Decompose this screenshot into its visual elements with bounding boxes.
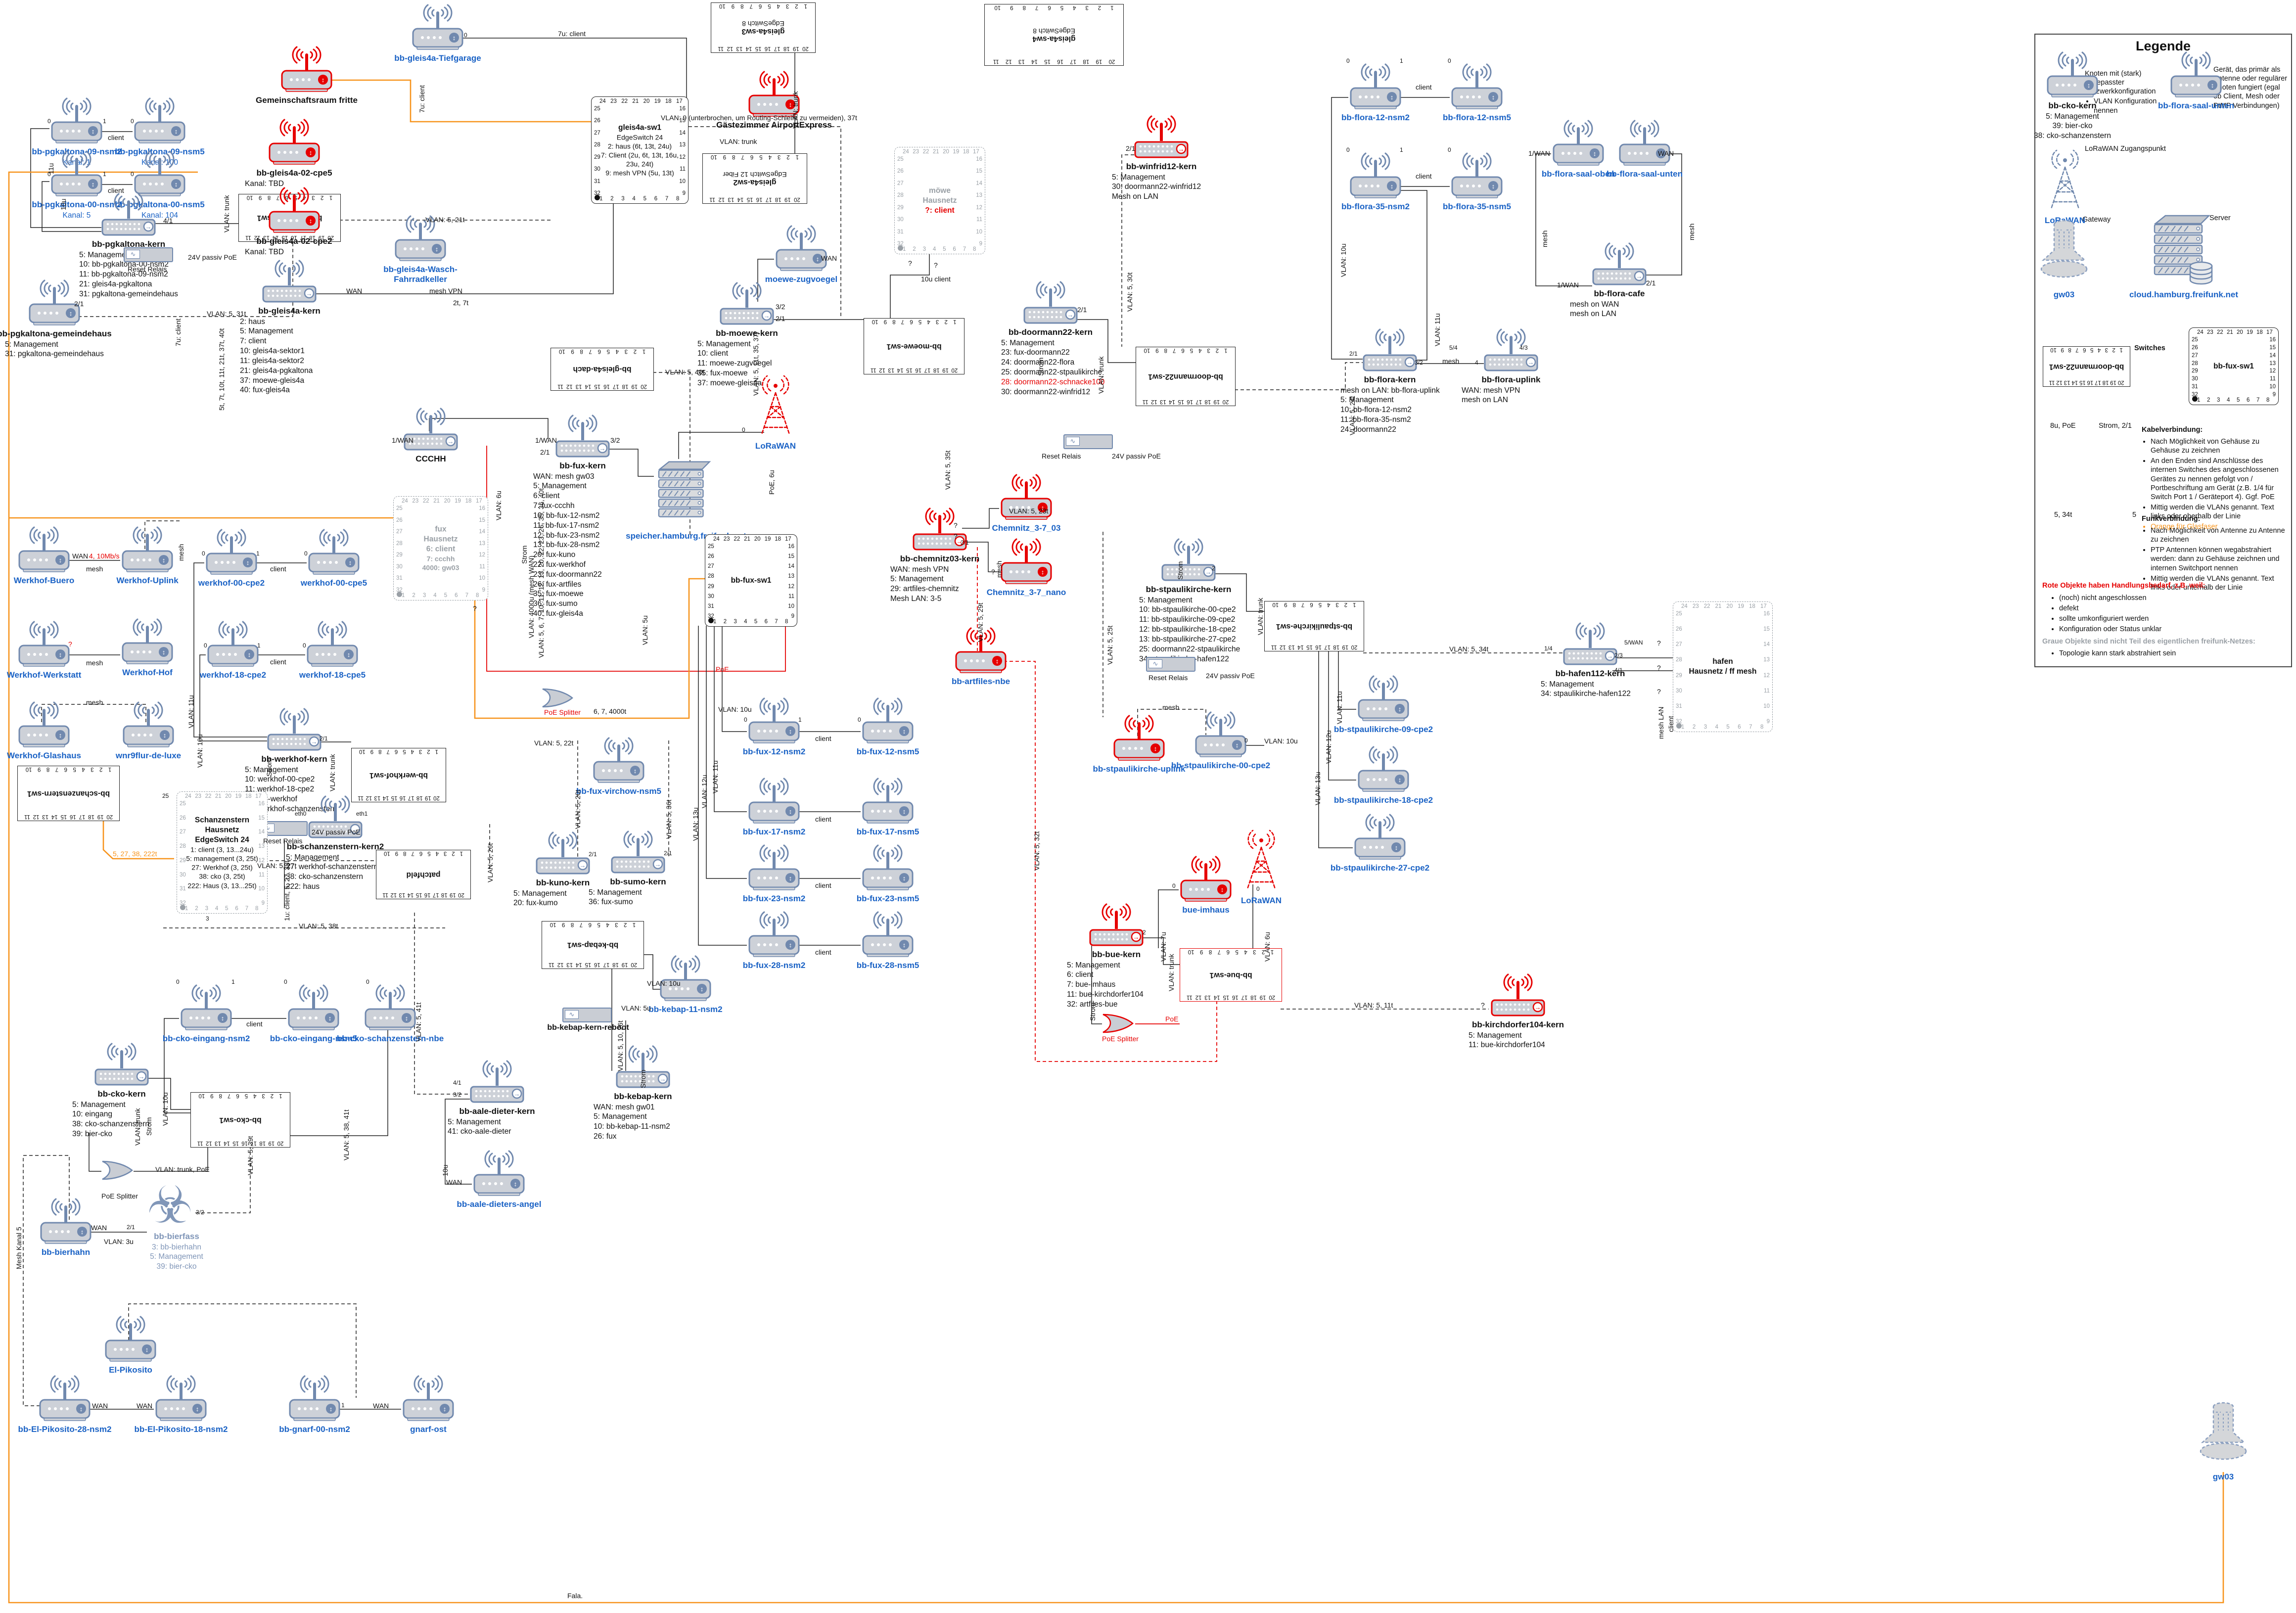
label-196: ? xyxy=(954,521,958,529)
lorawan-fux-label: LoRaWAN xyxy=(716,441,835,451)
bb-bue-kern-label: bb-bue-kern xyxy=(1057,950,1176,960)
bb-fux-virchow-nsm5[interactable]: ↕bb-fux-virchow-nsm5 xyxy=(592,735,710,796)
bb-sumo-kern-lines: 5: Management36: fux-sumo xyxy=(589,888,722,908)
label-102: Strom xyxy=(639,1070,647,1088)
label-148: PoE Splitter xyxy=(101,1192,138,1200)
lorawan-bue[interactable]: LoRaWAN xyxy=(1237,829,1355,906)
bb-el-pikosito-18-nsm2[interactable]: ↕bb-El-Pikosito-18-nsm2 xyxy=(154,1373,273,1434)
antenna-router-icon: ↕ xyxy=(2169,49,2223,98)
legend-sw32[interactable]: 2412516232261522327142142813205291219630… xyxy=(2189,327,2279,405)
label-121: 0 xyxy=(204,642,207,649)
label-65: mesh xyxy=(1688,224,1696,240)
antenna-router-icon: → xyxy=(1023,279,1078,324)
label-99: 2/1 xyxy=(664,850,672,857)
label-26: 7u: client xyxy=(174,319,182,346)
gleis4a-sw3[interactable]: 20191817161514131211gleis4a-sw3EdgeSwitc… xyxy=(711,2,816,53)
label-84: VLAN: 11u xyxy=(711,760,719,793)
svg-text:↕: ↕ xyxy=(789,941,792,949)
label-0: client xyxy=(108,134,124,141)
werkhof-18-cpe5-label: werkhof-18-cpe5 xyxy=(273,670,392,680)
bb-gleis4a-02-cpe5[interactable]: ↕bb-gleis4a-02-cpe5Kanal: TBD xyxy=(267,117,401,188)
antenna-router-icon: → xyxy=(470,1058,524,1104)
label-182: 2 xyxy=(1143,929,1146,936)
bb-schanzenstern-sw1-name: bb-schanzenstern-sw1 xyxy=(18,789,119,797)
label-104: 4/1 xyxy=(453,1079,461,1086)
bb-gleis4a-02-cpe5-label: bb-gleis4a-02-cpe5 xyxy=(235,168,354,178)
bb-artfiles-nbe-label: bb-artfiles-nbe xyxy=(921,677,1040,687)
patchfeld-name: patchfeld xyxy=(376,870,470,878)
antenna-router-icon: ↕ xyxy=(861,909,915,958)
svg-text:↕: ↕ xyxy=(1593,150,1597,157)
bb-flora-cafe[interactable]: →bb-flora-cafemesh on WANmesh on LAN xyxy=(1592,240,1726,319)
antenna-router-icon: → xyxy=(1484,326,1538,372)
legend-cable-sample-1: 8u, PoE xyxy=(2050,421,2085,430)
el-pikosito[interactable]: ↕El-Pikosito xyxy=(103,1314,222,1375)
svg-text:↕: ↕ xyxy=(903,875,906,882)
svg-text:↕: ↕ xyxy=(221,1014,225,1022)
antenna-router-icon: ↕ xyxy=(307,527,361,575)
schanzenstern-hausnetz-text: SchanzensternHausnetzEdgeSwitch 241: cli… xyxy=(184,815,260,890)
bb-schanzenstern-sw1-body: 20191817161514131211bb-schanzenstern-sw1… xyxy=(18,766,119,821)
bb-stpaulikirche-27-cpe2[interactable]: ↕bb-stpaulikirche-27-cpe2 xyxy=(1353,812,1471,873)
svg-text:↕: ↕ xyxy=(162,648,166,656)
patchfeld[interactable]: 20191817161514131211patchfeld12345678910 xyxy=(376,850,471,899)
label-54: VLAN: 11u xyxy=(1433,313,1441,346)
label-32: 2/1 xyxy=(776,315,785,323)
label-115: mesh xyxy=(86,698,103,706)
antenna-router-icon: ↕ xyxy=(133,95,187,144)
label-197: ? xyxy=(954,532,958,540)
gnarf-ost[interactable]: ↕gnarf-ost xyxy=(401,1373,520,1434)
bb-gleis4a-dach-body: 20191817161514131211bb-gleis4a-dach12345… xyxy=(551,348,653,390)
label-38: 2/1 xyxy=(1077,306,1087,314)
svg-text:↕: ↕ xyxy=(453,34,456,42)
label-92: 1 xyxy=(798,716,802,723)
svg-text:↕: ↕ xyxy=(700,985,704,993)
antenna-router-icon: → xyxy=(913,506,967,551)
hafen-hausnetz-text: hafenHausnetz / ff mesh xyxy=(1681,657,1764,677)
bb-doormann22-kern-lines: 5: Management23: fux-doormann2224: doorm… xyxy=(1001,338,1135,397)
bb-stpaulikirche-18-cpe2[interactable]: ↕bb-stpaulikirche-18-cpe2 xyxy=(1356,744,1475,805)
bb-aale-dieters-angel-label: bb-aale-dieters-angel xyxy=(440,1199,558,1209)
svg-text:→: → xyxy=(1535,1004,1541,1011)
bb-stpaulikirche-09-cpe2[interactable]: ↕bb-stpaulikirche-09-cpe2 xyxy=(1356,673,1475,735)
gleis4a-sw2-model: EdgeSwitch 12 Fiber xyxy=(703,171,807,178)
schanzenstern-hausnetz[interactable]: 2412516232261522327142142813205291219630… xyxy=(177,791,268,914)
antenna-router-icon: ↕ xyxy=(49,95,104,144)
bue-imhaus-label: bue-imhaus xyxy=(1147,905,1265,915)
bb-gleis4a-02-cpe2[interactable]: ↕bb-gleis4a-02-cpe2Kanal: TBD xyxy=(267,185,401,257)
antenna-router-icon: ↕ xyxy=(861,695,915,744)
bb-flora-saal-unten[interactable]: ↕bb-flora-saal-unten xyxy=(1617,118,1736,179)
svg-text:↕: ↕ xyxy=(175,181,178,188)
svg-text:↕: ↕ xyxy=(789,875,792,882)
bb-gleis4a-kern[interactable]: →bb-gleis4a-kern2: haus5: Management7: c… xyxy=(262,258,396,395)
label-45: client xyxy=(1416,83,1432,91)
bb-kebap-sw1-body: 20191817161514131211bb-kebap-sw112345678… xyxy=(542,922,643,968)
label-181: client xyxy=(1667,716,1675,732)
svg-text:↕: ↕ xyxy=(248,651,251,658)
label-165: 24V passiv PoE xyxy=(1206,672,1255,680)
antenna-router-icon: → xyxy=(555,413,610,458)
label-72: VLAN: 6u xyxy=(495,491,503,520)
antenna-router-icon: → xyxy=(267,706,321,751)
legend-node-example[interactable]: ↕bb-cko-kern5: Management39: bier-cko38:… xyxy=(2045,49,2164,141)
svg-text:↕: ↕ xyxy=(347,651,351,658)
label-6: 1 xyxy=(103,171,106,178)
legend-antenna-example[interactable]: ↕bb-flora-saal-unten xyxy=(2169,49,2288,111)
svg-text:→: → xyxy=(1607,652,1613,660)
label-9: 10u xyxy=(59,199,67,210)
bb-pgkaltona-gemeindehaus-label: bb-pgkaltona-gemeindehaus xyxy=(0,329,114,339)
label-103: VLAN: 5, 10, 26t xyxy=(616,1020,624,1071)
label-12: 24V passiv PoE xyxy=(188,253,237,261)
label-49: 0 xyxy=(1448,57,1451,64)
label-140: 0 xyxy=(176,978,180,985)
label-82: ? xyxy=(473,604,477,612)
bb-bierfass[interactable]: ☣bb-bierfass3: bb-bierhahn5: Management3… xyxy=(147,1180,266,1272)
gleis4a-sw2[interactable]: 20191817161514131211gleis4a-sw2EdgeSwitc… xyxy=(702,153,807,204)
bb-cko-sw1-body: 20191817161514131211bb-cko-sw11234567891… xyxy=(191,1093,290,1147)
label-64: mesh xyxy=(1541,230,1549,247)
label-124: VLAN: 11u xyxy=(187,695,195,728)
label-158: WAN xyxy=(373,1402,389,1410)
antenna-router-icon: ↕ xyxy=(861,776,915,824)
network-topology-canvas: Legende Knoten mit (stark) angepasster N… xyxy=(0,0,2296,1613)
wire-19 xyxy=(1332,97,1363,359)
bb-cko-schanzenstern-nbe[interactable]: ↕bb-cko-schanzenstern-nbe xyxy=(363,982,482,1044)
antenna-router-icon: → xyxy=(1563,620,1617,666)
bb-fux-17-nsm5[interactable]: ↕bb-fux-17-nsm5 xyxy=(861,776,979,837)
antenna-router-icon: ↕ xyxy=(103,1314,158,1362)
poe-splitter-fux[interactable] xyxy=(542,688,574,711)
label-74: VLAN: 4000u (mesh WAN) xyxy=(527,555,535,638)
bb-el-pikosito-18-nsm2-label: bb-El-Pikosito-18-nsm2 xyxy=(122,1425,240,1434)
antenna-router-icon: → xyxy=(262,258,317,303)
svg-text:↕: ↕ xyxy=(2211,82,2214,89)
antenna-router-icon: ↕ xyxy=(305,619,360,667)
svg-text:→: → xyxy=(1067,311,1074,319)
bb-flora-kern-lines: mesh on LAN: bb-flora-uplink5: Managemen… xyxy=(1340,386,1474,435)
label-22: WAN xyxy=(346,287,362,295)
lorawan-fux[interactable]: LoRaWAN xyxy=(751,374,870,451)
svg-text:→: → xyxy=(1636,273,1643,280)
antenna-router-icon: ↕ xyxy=(39,1196,93,1244)
label-186: 0 xyxy=(1172,882,1176,889)
svg-text:↕: ↕ xyxy=(163,732,167,739)
svg-text:→: → xyxy=(311,738,318,745)
bb-kebap-kern-reboot[interactable]: ∿bb-kebap-kern-reboot xyxy=(562,1008,612,1022)
label-122: 1 xyxy=(257,642,261,649)
label-21: VLAN: trunk xyxy=(720,138,757,145)
label-137: 1u: client, 5, 27, 38t xyxy=(283,861,291,921)
svg-text:→: → xyxy=(145,223,152,230)
legend-sw20[interactable]: 20191817161514131211bb-doormann22-sw1123… xyxy=(2043,346,2130,387)
label-77: 0 xyxy=(742,426,745,433)
legend-sw32-name: bb-fux-sw1 xyxy=(2196,361,2271,371)
svg-text:↕: ↕ xyxy=(309,149,313,156)
bb-gleis4a-dach[interactable]: 20191817161514131211bb-gleis4a-dach12345… xyxy=(551,348,654,391)
svg-text:↕: ↕ xyxy=(903,808,906,815)
werkhof-00-cpe2-label: werkhof-00-cpe2 xyxy=(172,578,291,588)
bb-flora-35-nsm2-label: bb-flora-35-nsm2 xyxy=(1316,202,1435,212)
bb-sumo-kern[interactable]: →bb-sumo-kern5: Management36: fux-sumo xyxy=(611,829,744,907)
bb-kebap-sw1-name: bb-kebap-sw1 xyxy=(542,941,643,949)
bb-aale-dieter-kern[interactable]: →bb-aale-dieter-kern5: Management41: cko… xyxy=(470,1058,603,1137)
bb-winfrid12-kern-label: bb-winfrid12-kern xyxy=(1102,162,1221,172)
bb-fux-23-nsm5[interactable]: ↕bb-fux-23-nsm5 xyxy=(861,842,979,904)
relay-pgkaltona[interactable]: ∿ xyxy=(124,247,173,262)
label-80: PoE Splitter xyxy=(544,708,581,716)
antenna-router-icon: → xyxy=(1134,113,1189,159)
label-24: 2t, 7t xyxy=(453,299,468,307)
bb-flora-35-nsm5-label: bb-flora-35-nsm5 xyxy=(1418,202,1536,212)
antenna-router-icon: → xyxy=(611,829,665,874)
bb-kebap-kern[interactable]: →bb-kebap-kernWAN: mesh gw015: Managemen… xyxy=(616,1043,749,1142)
bb-kirchdorfer104-kern[interactable]: →bb-kirchdorfer104-kern5: Management11: … xyxy=(1491,971,1624,1050)
label-63: WAN xyxy=(1658,149,1674,157)
bb-flora-12-nsm5[interactable]: ↕bb-flora-12-nsm5 xyxy=(1450,61,1568,123)
label-157: WAN xyxy=(137,1402,152,1410)
svg-text:↕: ↕ xyxy=(80,1405,83,1413)
bb-flora-uplink[interactable]: →bb-flora-uplinkWAN: mesh VPNmesh on LAN xyxy=(1484,326,1617,405)
werkhof-glashaus-label: Werkhof-Glashaus xyxy=(0,751,103,761)
bb-aale-dieters-angel[interactable]: ↕bb-aale-dieters-angel xyxy=(472,1148,591,1209)
bb-bierfass-label: bb-bierfass xyxy=(117,1232,236,1242)
bb-kebap-sw1[interactable]: 20191817161514131211bb-kebap-sw112345678… xyxy=(542,921,644,969)
gemeinschaftsraum-fritte[interactable]: ↕Gemeinschaftsraum fritte xyxy=(279,44,398,105)
svg-text:↕: ↕ xyxy=(309,217,313,225)
ccchh[interactable]: →CCCHH xyxy=(404,406,522,464)
label-20: VLAN: trunk xyxy=(791,92,799,129)
bb-flora-cafe-label: bb-flora-cafe xyxy=(1560,289,1679,299)
poe-splitter-icon xyxy=(1102,1013,1135,1034)
label-55: VLAN: 5, 24t xyxy=(1348,396,1356,435)
legend-red-bullets: (noch) nicht angeschlossendefektsollte u… xyxy=(2050,593,2268,636)
label-94: VLAN: 5, 20t xyxy=(574,790,582,829)
chemnitz-3-7-03-label: Chemnitz_3-7_03 xyxy=(967,523,1086,533)
label-23: mesh VPN xyxy=(429,287,462,295)
svg-text:↕: ↕ xyxy=(443,1405,447,1413)
relay-switch-icon: ∿ xyxy=(1148,659,1162,668)
label-19: 7u: client xyxy=(418,85,426,113)
antenna-router-icon: → xyxy=(1089,901,1144,947)
label-43: VLAN: 5, 30t xyxy=(1126,273,1134,312)
bb-fux-28-nsm5-label: bb-fux-28-nsm5 xyxy=(828,961,947,970)
label-127: VLAN: trunk xyxy=(328,754,336,791)
gleis4a-sw3-name: gleis4a-sw3 xyxy=(711,27,815,36)
bb-fux-28-nsm5[interactable]: ↕bb-fux-28-nsm5 xyxy=(861,909,979,970)
poe-splitter-cko[interactable] xyxy=(101,1160,134,1183)
legend-node-example-label: bb-cko-kern xyxy=(2013,101,2132,111)
label-184: VLAN: 7u xyxy=(1159,932,1167,962)
label-106: VLAN: 5, 41t xyxy=(414,1003,422,1042)
lorawan-tower-icon xyxy=(1237,829,1286,893)
label-149: VLAN: trunk, PoE xyxy=(155,1165,210,1173)
label-154: 3/2 xyxy=(196,1209,204,1216)
label-174: 2/3 xyxy=(1614,652,1623,659)
gateway-icon xyxy=(2037,218,2091,287)
relay-stpaulikirche[interactable]: ∿ xyxy=(1146,657,1195,672)
label-113: ? xyxy=(68,640,72,648)
bb-stpaulikirche-sw1[interactable]: 20191817161514131211bb-stpaulikirche-sw1… xyxy=(1264,601,1364,651)
legend-server[interactable]: cloud.hamburg.freifunk.net xyxy=(2152,213,2290,300)
label-89: client xyxy=(815,881,831,889)
bb-moewe-sw1-body: 20191817161514131211bb-moewe-sw112345678… xyxy=(864,319,964,374)
bb-winfrid12-kern-lines: 5: Management30: doormann22-winfrid12Mes… xyxy=(1112,173,1245,202)
label-172: VLAN: 5, 34t xyxy=(1449,645,1488,653)
label-146: VLAN: trunk xyxy=(134,1108,141,1146)
chemnitz-3-7-03[interactable]: ↕Chemnitz_3-7_03 xyxy=(999,472,1118,533)
bb-cko-sw1[interactable]: 20191817161514131211bb-cko-sw11234567891… xyxy=(190,1092,290,1148)
label-52: 0 xyxy=(1448,146,1451,153)
svg-text:↕: ↕ xyxy=(59,732,62,739)
label-3: 1 xyxy=(103,118,106,125)
label-111: mesh xyxy=(86,565,103,573)
chemnitz-3-7-nano-label: Chemnitz_3-7_nano xyxy=(967,588,1086,598)
label-193: VLAN: 5, 32t xyxy=(1033,831,1041,871)
antenna-router-icon: ↕ xyxy=(747,695,801,744)
antenna-router-icon: ↕ xyxy=(999,536,1054,585)
bb-gleis4a-dach-name: bb-gleis4a-dach xyxy=(551,365,653,373)
bb-moewe-kern[interactable]: →bb-moewe-kern5: Management10: client11:… xyxy=(720,280,853,388)
bb-flora-uplink-lines: WAN: mesh VPNmesh on LAN xyxy=(1462,386,1595,406)
antenna-router-icon: ↕ xyxy=(1112,713,1166,761)
legend-radio-title: Funkverbindung: xyxy=(2142,514,2206,523)
bb-fux-12-nsm5[interactable]: ↕bb-fux-12-nsm5 xyxy=(861,695,979,757)
gleis4a-sw4[interactable]: 20191817161514131211gleis4a-sw4EdgeSwitc… xyxy=(984,4,1124,66)
label-178: ? xyxy=(1657,664,1661,672)
antenna-router-icon: ↕ xyxy=(267,117,321,165)
label-119: 1 xyxy=(256,550,260,557)
label-86: VLAN: 13u xyxy=(691,807,699,841)
bb-fux-kern-label: bb-fux-kern xyxy=(523,461,642,471)
bb-schanzenstern-sw1[interactable]: 20191817161514131211bb-schanzenstern-sw1… xyxy=(17,766,120,821)
relay-switch-icon: ∿ xyxy=(126,250,140,259)
legend-lorawan[interactable]: LoRaWAN xyxy=(2040,148,2159,226)
chemnitz-3-7-nano[interactable]: ↕Chemnitz_3-7_nano xyxy=(999,536,1118,598)
label-125: VLAN: 10u xyxy=(196,734,204,768)
bb-moewe-sw1[interactable]: 20191817161514131211bb-moewe-sw112345678… xyxy=(864,318,964,374)
svg-text:→: → xyxy=(580,862,586,869)
gleis4a-sw4-model: EdgeSwitch 8 xyxy=(985,27,1123,34)
server-icon xyxy=(2152,213,2216,287)
bb-gleis4a-wasch-fahrradkeller[interactable]: ↕bb-gleis4a-Wasch-Fahrradkeller xyxy=(393,213,512,284)
label-13: Reset Relais xyxy=(128,265,167,273)
label-71: 3/2 xyxy=(610,436,620,444)
bb-winfrid12-kern[interactable]: →bb-winfrid12-kern5: Management30: doorm… xyxy=(1134,113,1268,202)
bb-gnarf-00-nsm2-label: bb-gnarf-00-nsm2 xyxy=(255,1425,374,1434)
relay-doormann22[interactable]: ∿ xyxy=(1063,434,1113,449)
label-153: VLAN: 3u xyxy=(104,1238,134,1245)
svg-text:→: → xyxy=(306,290,313,297)
bb-pgkaltona-gemeindehaus[interactable]: ↕bb-pgkaltona-gemeindehaus5: Management3… xyxy=(27,277,161,359)
antenna-router-icon: ↕ xyxy=(1348,61,1403,110)
label-138: VLAN: 5, 38t xyxy=(299,922,338,930)
bb-artfiles-nbe[interactable]: ↕bb-artfiles-nbe xyxy=(954,625,1072,687)
svg-text:↕: ↕ xyxy=(321,76,325,84)
label-93: 0 xyxy=(858,716,861,723)
gw03[interactable]: gw03 xyxy=(2196,1400,2296,1482)
svg-text:↕: ↕ xyxy=(59,556,62,564)
label-155: VLAN: 5, 39t xyxy=(246,1136,254,1175)
bb-hafen112-kern-lines: 5: Management34: stpaulikirche-hafen122 xyxy=(1541,680,1674,699)
bb-el-pikosito-28-nsm2-label: bb-El-Pikosito-28-nsm2 xyxy=(5,1425,124,1434)
label-136: eth1 xyxy=(356,810,367,817)
antenna-router-icon: ↕ xyxy=(154,1373,208,1422)
ccchh-label: CCCHH xyxy=(371,454,490,464)
label-50: 0 xyxy=(1346,146,1350,153)
svg-text:→: → xyxy=(1178,145,1185,153)
label-31: 3/2 xyxy=(776,303,785,311)
werkhof-00-cpe5[interactable]: ↕werkhof-00-cpe5 xyxy=(307,527,425,588)
bb-doormann22-sw1[interactable]: 20191817161514131211bb-doormann22-sw1123… xyxy=(1136,347,1236,406)
bb-gleis4a-02-cpe2-lines: Kanal: TBD xyxy=(245,247,378,257)
label-147: Strom xyxy=(145,1117,153,1136)
legend-server-label: cloud.hamburg.freifunk.net xyxy=(2114,290,2253,300)
wnr9flur-de-luxe[interactable]: ↕wnr9flur-de-luxe xyxy=(121,699,240,761)
svg-text:→: → xyxy=(514,1090,520,1098)
antenna-router-icon: ↕ xyxy=(120,616,175,665)
gateway-icon xyxy=(2196,1400,2250,1469)
bb-gleis4a-kern-lines: 2: haus5: Management7: client10: gleis4a… xyxy=(240,317,373,396)
label-44: 2/1 xyxy=(1126,144,1135,152)
svg-text:↕: ↕ xyxy=(996,657,999,665)
label-18: 7u: client xyxy=(558,30,586,38)
moewe-hausnetz[interactable]: 2412516232261522327142142813205291219630… xyxy=(894,147,985,254)
bb-hafen112-kern-label: bb-hafen112-kern xyxy=(1531,669,1650,679)
antenna-router-icon: ↕ xyxy=(592,735,646,783)
hafen-hausnetz[interactable]: 2412516232261522327142142813205291219630… xyxy=(1673,601,1773,732)
svg-text:→: → xyxy=(138,1073,145,1080)
label-139: client xyxy=(246,1020,263,1028)
legend-sw20-body: 20191817161514131211bb-doormann22-sw1123… xyxy=(2043,347,2130,386)
bb-gleis4a-tiefgarage[interactable]: ↕bb-gleis4a-Tiefgarage xyxy=(411,2,529,63)
moewe-zugvoegel[interactable]: ↕moewe-zugvoegel xyxy=(774,223,893,284)
bb-fux-sw1[interactable]: 2412516232261522327142142813205291219630… xyxy=(705,534,797,627)
gleis4a-sw1[interactable]: 2412516232261522327142142813205291219630… xyxy=(591,96,689,204)
antenna-router-icon: ↕ xyxy=(1353,812,1407,860)
label-61: 4 xyxy=(1475,359,1478,366)
gleis4a-sw3-model: EdgeSwitch 8 xyxy=(711,20,815,27)
antenna-router-icon: → xyxy=(1161,536,1216,582)
bb-flora-35-nsm5[interactable]: ↕bb-flora-35-nsm5 xyxy=(1450,150,1568,212)
label-168: VLAN: 10u xyxy=(1264,737,1298,745)
label-188: Strom xyxy=(1089,1003,1097,1021)
legend-gray-title: Graue Objekte sind nicht Teil des eigent… xyxy=(2042,637,2285,646)
svg-text:↕: ↕ xyxy=(196,1405,199,1413)
label-39: Strom xyxy=(1037,358,1045,376)
svg-text:↕: ↕ xyxy=(435,245,439,253)
bb-flora-cafe-lines: mesh on WANmesh on LAN xyxy=(1570,300,1703,320)
svg-text:↕: ↕ xyxy=(59,651,62,658)
label-126: 2/1 xyxy=(320,735,328,742)
bb-cko-schanzenstern-nbe-label: bb-cko-schanzenstern-nbe xyxy=(331,1034,450,1044)
antenna-router-icon: ↕ xyxy=(179,982,233,1031)
svg-text:↕: ↕ xyxy=(329,1405,333,1413)
label-176: 5/WAN xyxy=(1624,639,1643,646)
werkhof-18-cpe5[interactable]: ↕werkhof-18-cpe5 xyxy=(305,619,424,680)
label-194: VLAN: 5, 29t xyxy=(976,603,984,642)
label-195: mesh xyxy=(995,561,1003,578)
label-200: Fala. xyxy=(567,1592,583,1600)
label-14: VLAN: 5, 31t xyxy=(207,310,246,318)
poe-splitter-bue[interactable] xyxy=(1102,1013,1135,1036)
label-70: 2/1 xyxy=(540,448,550,456)
legend-radio-sample-2: 5 xyxy=(2132,510,2142,519)
bb-aale-dieter-kern-lines: 5: Management41: cko-aale-dieter xyxy=(448,1117,581,1137)
legend-gw03[interactable]: gw03 xyxy=(2037,218,2156,300)
